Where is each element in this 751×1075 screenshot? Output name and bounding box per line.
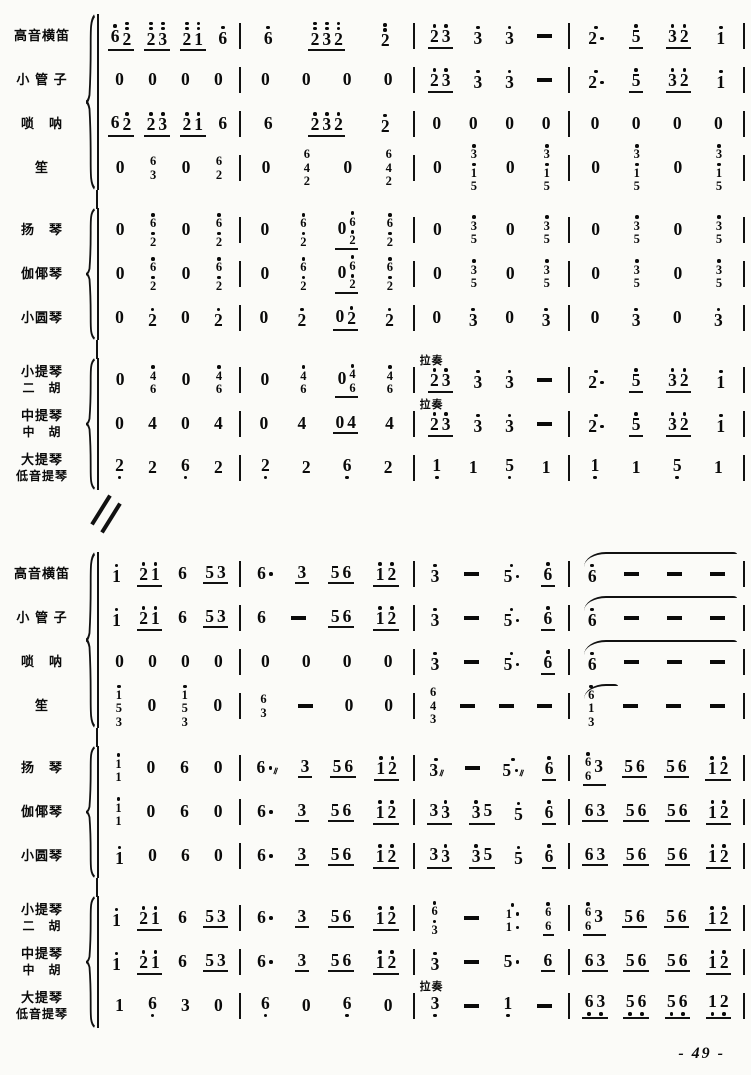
measure-notes: 25321 bbox=[570, 67, 743, 93]
beam-group: 062 bbox=[335, 210, 358, 250]
digit: 4 bbox=[300, 370, 306, 383]
digit: 3 bbox=[432, 924, 438, 937]
note: 2 bbox=[139, 605, 148, 628]
note-group: 1 bbox=[712, 459, 726, 477]
beam-group: 21 bbox=[137, 561, 163, 587]
note-cell: 0 bbox=[214, 653, 223, 671]
staff-row: 1216536356123566 bbox=[99, 552, 745, 596]
tie-arc bbox=[584, 596, 737, 613]
beam-group: 53 bbox=[203, 564, 229, 585]
digit-row: 0 bbox=[384, 653, 393, 671]
staff-row: 063062064206420315031503150315 bbox=[99, 146, 745, 190]
digit-row: 2 bbox=[304, 175, 310, 188]
digit-row: 0 bbox=[147, 759, 156, 777]
digit: 6 bbox=[585, 952, 594, 970]
note: 3 bbox=[505, 413, 514, 436]
note-group: 5 bbox=[501, 607, 522, 630]
digit: 1 bbox=[716, 418, 725, 436]
octave-dot-below bbox=[675, 476, 679, 480]
digit: 0 bbox=[115, 415, 124, 433]
brace bbox=[84, 746, 97, 878]
note: 3 bbox=[594, 758, 603, 776]
note: 6 bbox=[257, 909, 273, 927]
measure-notes: 635612 bbox=[241, 905, 413, 931]
digit: 6 bbox=[111, 114, 120, 132]
beam-group: 6 bbox=[541, 561, 555, 587]
augmentation-dot bbox=[269, 810, 273, 814]
note-cell: 6 bbox=[585, 993, 594, 1016]
note-group: 46 bbox=[147, 364, 158, 396]
note-group: 0 bbox=[258, 371, 272, 389]
digit: 6 bbox=[218, 115, 227, 133]
digit: 6 bbox=[180, 803, 189, 821]
instrument-label-line: 小 管 子 bbox=[0, 72, 84, 88]
note: 0 bbox=[384, 997, 393, 1015]
digit-row: 5 bbox=[624, 908, 633, 926]
note-cell: 6 bbox=[678, 908, 687, 926]
note: 2 bbox=[122, 21, 131, 49]
note: 5 bbox=[667, 846, 676, 864]
digit: 1 bbox=[432, 457, 441, 475]
digit-row: 6 bbox=[387, 261, 393, 274]
digit-row: 0 bbox=[260, 265, 269, 283]
digit-row: 0 bbox=[260, 309, 269, 327]
digit-row: 2 bbox=[216, 169, 222, 182]
note-group: 46 bbox=[384, 364, 395, 396]
digit: 1 bbox=[471, 167, 477, 180]
digit: 6 bbox=[387, 383, 393, 396]
measure-notes: 1151 bbox=[415, 457, 569, 480]
digit: 1 bbox=[376, 566, 385, 584]
note-group: 1 bbox=[539, 459, 553, 477]
note-cell: 1 bbox=[151, 949, 160, 972]
digit: 0 bbox=[147, 759, 156, 777]
note-cell: 6 bbox=[678, 758, 687, 776]
digit: 2 bbox=[122, 31, 131, 49]
note-group: 0 bbox=[259, 159, 273, 177]
brace bbox=[84, 896, 97, 1028]
measure: 63565612 bbox=[570, 984, 745, 1028]
digit: 0 bbox=[116, 265, 125, 283]
note-cell: 0 bbox=[384, 697, 393, 715]
note-cell: 5 bbox=[632, 67, 641, 90]
note-group: 63 bbox=[258, 693, 269, 720]
digit: 6 bbox=[181, 457, 190, 475]
note: 5// bbox=[502, 757, 523, 780]
digit: 0 bbox=[181, 71, 190, 89]
digit-row: 2 bbox=[139, 566, 148, 584]
note-cell: 5 bbox=[716, 277, 722, 290]
beam-group: 12 bbox=[705, 905, 731, 931]
note-cell: 1 bbox=[506, 921, 519, 934]
note-cell: 5 bbox=[471, 277, 477, 290]
digit-row: 3 bbox=[217, 608, 226, 626]
note: 5 bbox=[504, 651, 520, 674]
digit: 2 bbox=[388, 610, 397, 628]
measure: 63565612 bbox=[570, 940, 745, 984]
digit: 6 bbox=[588, 612, 597, 630]
note: 1 bbox=[714, 459, 723, 477]
note: 2 bbox=[720, 755, 729, 778]
note: 3 bbox=[668, 23, 677, 46]
digit-row: 6 bbox=[349, 260, 355, 273]
digit-row: 4 bbox=[430, 700, 436, 713]
instrument-label-line: 扬 琴 bbox=[0, 760, 84, 776]
measure-notes: 2333 bbox=[415, 67, 569, 93]
note-group: 62 bbox=[213, 155, 224, 182]
augmentation-dot bbox=[269, 766, 273, 770]
note: 0 bbox=[343, 159, 352, 177]
digit: 0 bbox=[591, 309, 600, 327]
dash-note bbox=[710, 572, 725, 575]
note-cell: 0 bbox=[147, 759, 156, 777]
note-cell: 2 bbox=[300, 231, 306, 249]
digit: 3 bbox=[116, 716, 122, 729]
note-cell: 3 bbox=[429, 846, 438, 864]
digit-row: 0 bbox=[181, 653, 190, 671]
octave-dot-below bbox=[264, 476, 268, 480]
note: 3 bbox=[217, 908, 226, 926]
note: 11 bbox=[506, 902, 519, 934]
digit: 1 bbox=[112, 956, 121, 974]
note: 6 bbox=[218, 25, 227, 48]
note-cell: 0 bbox=[182, 159, 191, 177]
dash-note bbox=[667, 616, 682, 619]
note: 5 bbox=[626, 952, 635, 970]
note-cell: 3 bbox=[668, 67, 677, 90]
staff-row: 62232166232200000000 bbox=[99, 102, 745, 146]
measure-notes: 2262 bbox=[99, 457, 239, 480]
note-cell: 2 bbox=[680, 411, 689, 434]
note-cell: 3 bbox=[298, 802, 307, 820]
measure: 121653 bbox=[99, 596, 241, 640]
digit: 6 bbox=[387, 217, 393, 230]
digit: 2 bbox=[214, 459, 223, 477]
digit-row: 1 bbox=[182, 689, 188, 702]
digit-row: 3 bbox=[505, 30, 514, 48]
note-group: 62 bbox=[147, 255, 158, 292]
note-group: 3 bbox=[428, 995, 442, 1018]
note: 3 bbox=[431, 995, 440, 1018]
digit-row: 2 bbox=[302, 459, 311, 477]
note: 2 bbox=[385, 307, 394, 330]
digit: 2 bbox=[122, 116, 131, 134]
note-cell: 5 bbox=[205, 908, 214, 926]
measure-notes: 356 bbox=[415, 561, 569, 587]
digit: 5 bbox=[667, 846, 676, 864]
note-group: 2 bbox=[212, 307, 226, 330]
note: 35 bbox=[471, 214, 477, 246]
digit-row: 3 bbox=[542, 312, 551, 330]
note-cell: 2 bbox=[680, 23, 689, 46]
digit: 3 bbox=[473, 374, 482, 392]
octave-dot-below bbox=[711, 1012, 715, 1016]
beam-group: 3 bbox=[295, 564, 309, 585]
octave-dot-above bbox=[149, 22, 153, 26]
digit-row: 2 bbox=[680, 28, 689, 46]
note-group: 0 bbox=[145, 697, 159, 715]
digit: 6 bbox=[264, 30, 273, 48]
note-cell: 3 bbox=[150, 169, 156, 182]
digit-row: 0 bbox=[182, 221, 191, 239]
beam-group: 53 bbox=[203, 952, 229, 973]
digit: 6 bbox=[679, 993, 688, 1011]
digit-row: 2 bbox=[300, 280, 306, 293]
group-staves: 6223216623222333253210000000023332532162… bbox=[97, 14, 745, 190]
note: 642 bbox=[386, 148, 392, 189]
digit: 3 bbox=[505, 374, 514, 392]
note-group: 3 bbox=[503, 69, 517, 92]
note-cell: 3 bbox=[442, 367, 451, 390]
note-cell: 5 bbox=[626, 846, 635, 864]
note: 2 bbox=[430, 23, 439, 46]
measure: 663565612 bbox=[570, 896, 745, 940]
instrument-label: 高音横笛 bbox=[0, 552, 84, 596]
note-group: 2 bbox=[381, 459, 395, 477]
digit: 0 bbox=[115, 653, 124, 671]
measure: 356 bbox=[415, 640, 571, 684]
digit: 1 bbox=[115, 758, 121, 771]
instrument-label-line: 大提琴 bbox=[0, 452, 84, 468]
digit-row: 6 bbox=[216, 155, 222, 168]
digit-row: 0 bbox=[338, 370, 347, 388]
note: 3 bbox=[429, 846, 438, 864]
digit: 1 bbox=[542, 459, 551, 477]
note-cell: 0 bbox=[182, 221, 191, 239]
digit-row: 5// bbox=[502, 762, 523, 780]
note-group: 35 bbox=[631, 214, 642, 246]
note-cell: 2 bbox=[147, 21, 156, 49]
note-cell: 4 bbox=[386, 162, 392, 175]
note-group: 35 bbox=[713, 214, 724, 246]
note-cell: 6 bbox=[264, 115, 273, 133]
digit: 2 bbox=[261, 457, 270, 475]
digit: 6 bbox=[343, 952, 352, 970]
note-cell: 1 bbox=[708, 843, 717, 866]
digit: 3 bbox=[473, 74, 482, 92]
digit-row: 2 bbox=[680, 416, 689, 434]
note-cell: 6 bbox=[343, 846, 352, 864]
note-group: 6 bbox=[255, 565, 276, 583]
digit-row: 5 bbox=[667, 802, 676, 820]
note: 1 bbox=[376, 843, 385, 866]
note: 3 bbox=[505, 25, 514, 48]
digit-row: 0 bbox=[335, 308, 344, 326]
note: 6 bbox=[343, 908, 352, 926]
note: 5 bbox=[632, 67, 641, 90]
digit: 0 bbox=[591, 159, 600, 177]
digit-row: 1 bbox=[194, 116, 203, 134]
note-group: 6 bbox=[261, 25, 275, 48]
measure-notes: 03150315 bbox=[570, 143, 743, 194]
instrument-label-line: 唢 呐 bbox=[0, 116, 84, 132]
barline bbox=[743, 843, 745, 869]
note-cell: 0 bbox=[214, 71, 223, 89]
note: 3 bbox=[473, 369, 482, 392]
note-cell: 1 bbox=[708, 905, 717, 928]
note-group: 642 bbox=[301, 148, 312, 189]
digit-row: 5 bbox=[331, 952, 340, 970]
digit-row: 0 bbox=[591, 159, 600, 177]
note-group: 11 bbox=[113, 752, 124, 784]
digit-row: 0 bbox=[673, 309, 682, 327]
digit-row: 6 bbox=[638, 846, 647, 864]
digit: 3 bbox=[431, 956, 440, 974]
octave-dot-below bbox=[593, 476, 597, 480]
note-cell: 6 bbox=[349, 382, 355, 395]
note-cell: 2 bbox=[147, 111, 156, 134]
note: 3 bbox=[441, 799, 450, 822]
note: 0 bbox=[338, 264, 347, 282]
digit-row: 3 bbox=[505, 74, 514, 92]
note-group: 6 bbox=[255, 803, 276, 821]
note-cell: 3 bbox=[634, 258, 640, 276]
note-cell: 3 bbox=[298, 846, 307, 864]
digit: 5 bbox=[205, 908, 214, 926]
digit-row: 6 bbox=[545, 848, 554, 866]
note-cell: 0 bbox=[506, 265, 515, 283]
digit-row: 0 bbox=[115, 653, 124, 671]
note: 46 bbox=[387, 364, 393, 396]
digit: 6 bbox=[343, 908, 352, 926]
note: 5 bbox=[624, 758, 633, 776]
digit: 5 bbox=[716, 233, 722, 246]
octave-dot-below bbox=[681, 1012, 685, 1016]
note-group: 6 bbox=[176, 909, 190, 927]
digit-row: 5 bbox=[205, 608, 214, 626]
digit-row: 2 bbox=[388, 910, 397, 928]
note: 3 bbox=[596, 846, 605, 864]
note-cell: 5 bbox=[544, 233, 550, 246]
note-cell: 5 bbox=[716, 180, 722, 193]
note-group: 62 bbox=[298, 255, 309, 292]
note-cell: 6 bbox=[344, 758, 353, 776]
note-cell: 0 bbox=[115, 309, 124, 327]
note-cell: 6 bbox=[343, 952, 352, 970]
note-cell: 3 bbox=[594, 908, 603, 926]
note: 2 bbox=[147, 21, 156, 49]
note-cell: 2 bbox=[139, 949, 148, 972]
digit-row: 3 bbox=[442, 72, 451, 90]
digit: 6 bbox=[588, 568, 597, 586]
digit: 2 bbox=[148, 459, 157, 477]
note-group: 0 bbox=[299, 71, 313, 89]
score-system: 高音横笛小 管 子唢 呐笙622321662322233325321000000… bbox=[0, 0, 751, 490]
beam-group: 5 bbox=[629, 367, 643, 393]
note: 5 bbox=[632, 411, 641, 434]
group-staves: 1216536356126311666635656121216536356123… bbox=[97, 896, 745, 1028]
digit-row: 0 bbox=[148, 71, 157, 89]
digit: 3 bbox=[668, 72, 677, 90]
digit: 3 bbox=[716, 264, 722, 277]
note-group: 0 bbox=[342, 697, 356, 715]
note-cell: 4 bbox=[214, 415, 223, 433]
beam-group: 35 bbox=[469, 799, 495, 825]
digit: 0 bbox=[213, 697, 222, 715]
measure-notes: 121653 bbox=[99, 561, 239, 587]
note-cell: 3 bbox=[217, 608, 226, 626]
note: 6// bbox=[257, 759, 278, 777]
digit-row: 0 bbox=[433, 159, 442, 177]
digit: 2 bbox=[147, 31, 156, 49]
staff-row: 16306060拉奏3163565612 bbox=[99, 984, 745, 1028]
note: 1 bbox=[542, 459, 551, 477]
measure: 拉奏2333 bbox=[415, 402, 571, 446]
note: 0 bbox=[506, 265, 515, 283]
note: 1 bbox=[708, 755, 717, 778]
measure: 65612 bbox=[241, 596, 415, 640]
note: 6 bbox=[180, 759, 189, 777]
note: 0 bbox=[260, 221, 269, 239]
note: 0 bbox=[384, 697, 393, 715]
digit-row: 0 bbox=[343, 71, 352, 89]
digit: 4 bbox=[304, 162, 310, 175]
note: 6 bbox=[545, 843, 554, 866]
note: 3 bbox=[431, 563, 440, 586]
note: 3 bbox=[298, 952, 307, 970]
digit-row: 1 bbox=[471, 167, 477, 180]
augmentation-dot bbox=[516, 926, 520, 930]
note-cell: 2 bbox=[216, 169, 222, 182]
note: 1 bbox=[151, 949, 160, 972]
note-cell: 0 bbox=[148, 653, 157, 671]
digit: 2 bbox=[388, 954, 397, 972]
digit: 5 bbox=[484, 846, 493, 864]
digit: 3 bbox=[594, 758, 603, 776]
note-group: 3 bbox=[503, 413, 517, 436]
digit: 2 bbox=[150, 280, 156, 293]
digit: 1 bbox=[376, 760, 385, 778]
digit-row: 0 bbox=[116, 221, 125, 239]
instrument-label: 小提琴二 胡 bbox=[0, 358, 84, 402]
measure-notes: 635612 bbox=[241, 843, 413, 869]
digit: 5 bbox=[634, 180, 640, 193]
digit: 2 bbox=[387, 236, 393, 249]
digit: 6 bbox=[343, 564, 352, 582]
measure: 6060 bbox=[241, 984, 415, 1028]
measure-notes: 0000 bbox=[570, 115, 743, 133]
digit: 2 bbox=[388, 566, 397, 584]
measure-notes: 03150315 bbox=[415, 143, 569, 194]
augmentation-dot bbox=[600, 81, 604, 85]
instrument-label-line: 笙 bbox=[0, 698, 84, 714]
note: 3 bbox=[158, 21, 167, 49]
digit: 0 bbox=[302, 653, 311, 671]
note: 35 bbox=[716, 214, 722, 246]
digit: 6 bbox=[545, 804, 554, 822]
digit: 3 bbox=[298, 908, 307, 926]
note: 1 bbox=[708, 799, 717, 822]
instrument-label-line: 扬 琴 bbox=[0, 222, 84, 238]
note-cell: 6 bbox=[349, 210, 355, 228]
digit: 4 bbox=[297, 415, 306, 433]
note: 2 bbox=[148, 307, 157, 330]
note-group: 0 bbox=[179, 71, 193, 89]
digit-row: 6 bbox=[636, 758, 645, 776]
note: 1 bbox=[716, 369, 725, 392]
instrument-label: 小 管 子 bbox=[0, 58, 84, 102]
note: 62 bbox=[150, 211, 156, 248]
digit-row: 3 bbox=[441, 848, 450, 866]
bowed-annotation: 拉奏 bbox=[420, 352, 444, 368]
instrument-label-line: 高音横笛 bbox=[0, 566, 84, 582]
note-cell: 1 bbox=[376, 605, 385, 628]
note: 5 bbox=[504, 953, 520, 971]
note-cell: 0 bbox=[116, 371, 125, 389]
digit-row: 6 bbox=[150, 383, 156, 396]
note: 2 bbox=[381, 22, 390, 50]
digit-row: 3 bbox=[441, 804, 450, 822]
